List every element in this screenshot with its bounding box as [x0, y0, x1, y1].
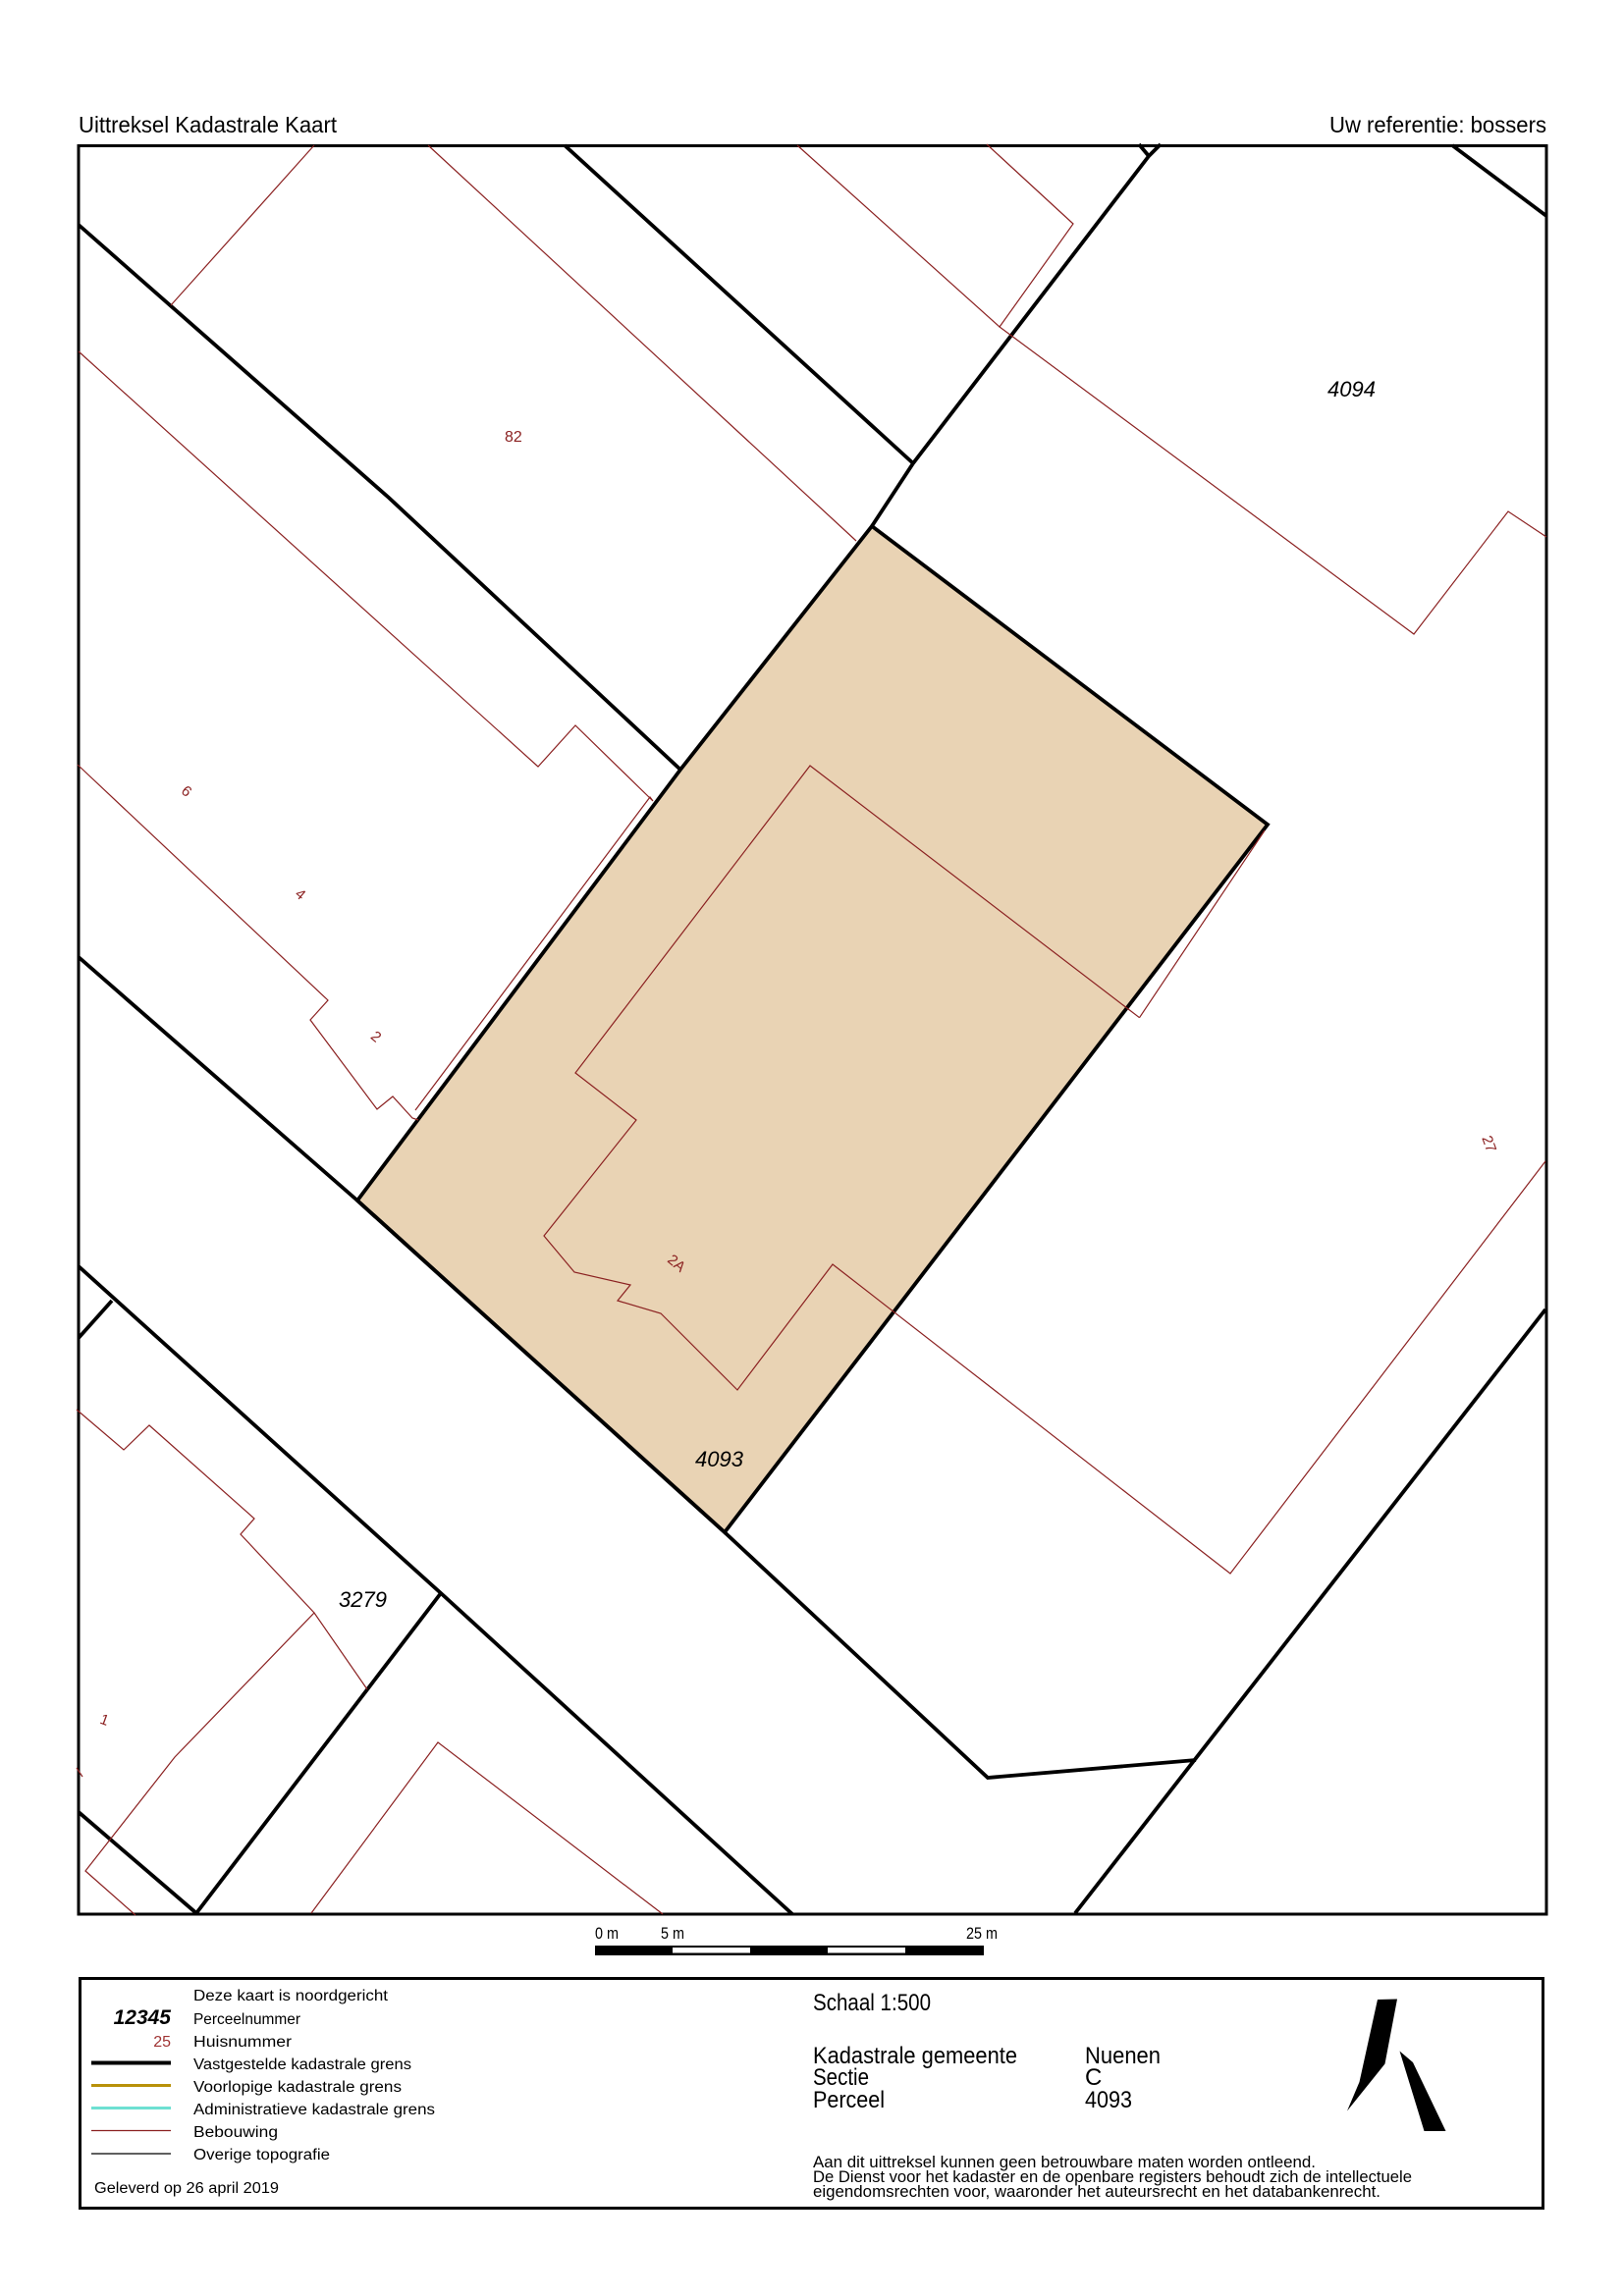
- svg-text:82: 82: [505, 429, 522, 446]
- svg-text:Bebouwing: Bebouwing: [193, 2124, 278, 2141]
- svg-text:Schaal 1:500: Schaal 1:500: [813, 1990, 931, 2016]
- svg-text:Perceel: Perceel: [813, 2087, 885, 2113]
- svg-text:Overige topografie: Overige topografie: [193, 2147, 330, 2163]
- svg-text:Voorlopige kadastrale grens: Voorlopige kadastrale grens: [193, 2079, 402, 2096]
- svg-text:Geleverd op 26 april 2019: Geleverd op 26 april 2019: [94, 2180, 279, 2197]
- svg-text:4093: 4093: [695, 1447, 744, 1471]
- svg-text:Vastgestelde kadastrale grens: Vastgestelde kadastrale grens: [193, 2056, 411, 2073]
- svg-text:25: 25: [153, 2034, 171, 2051]
- svg-text:4093: 4093: [1085, 2087, 1132, 2113]
- svg-text:Perceelnummer: Perceelnummer: [193, 2011, 300, 2028]
- svg-text:25 m: 25 m: [966, 1924, 998, 1943]
- svg-text:Deze kaart is noordgericht: Deze kaart is noordgericht: [193, 1988, 389, 2004]
- svg-text:Uittreksel Kadastrale Kaart: Uittreksel Kadastrale Kaart: [79, 112, 338, 137]
- svg-text:Huisnummer: Huisnummer: [193, 2034, 292, 2051]
- svg-text:3279: 3279: [339, 1587, 387, 1612]
- svg-text:Uw referentie: bossers: Uw referentie: bossers: [1329, 112, 1546, 137]
- svg-text:4094: 4094: [1327, 377, 1376, 401]
- svg-text:5 m: 5 m: [661, 1924, 684, 1943]
- svg-text:0 m: 0 m: [595, 1924, 619, 1943]
- svg-text:eigendomsrechten voor, waarond: eigendomsrechten voor, waaronder het aut…: [813, 2183, 1380, 2201]
- svg-text:Administratieve kadastrale gre: Administratieve kadastrale grens: [193, 2102, 435, 2118]
- svg-text:12345: 12345: [114, 2006, 172, 2029]
